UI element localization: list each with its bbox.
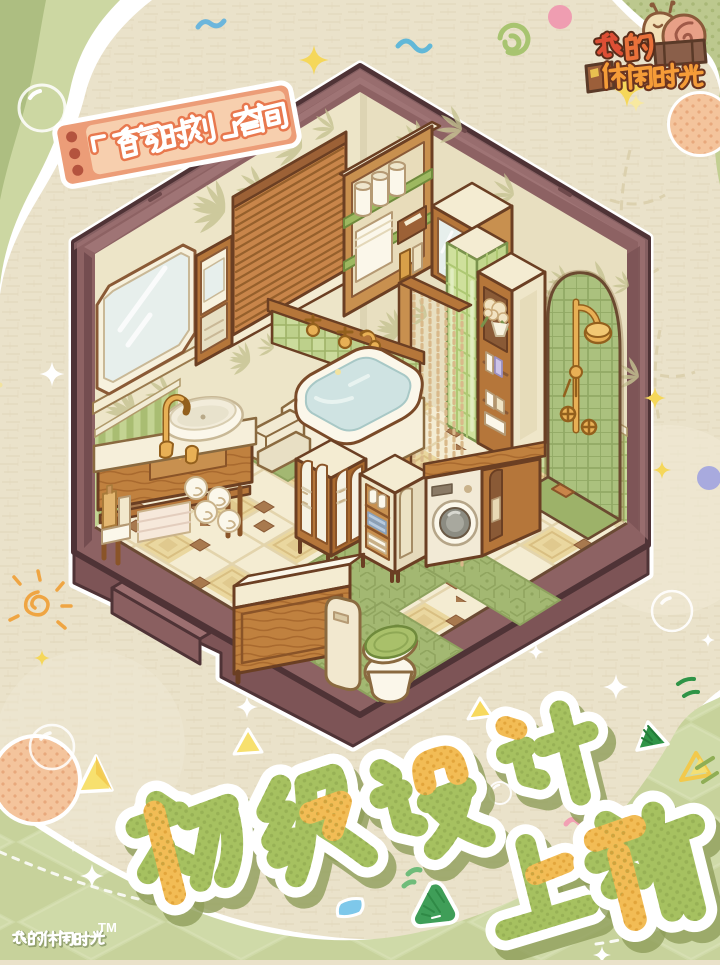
svg-text:TM: TM (98, 920, 117, 935)
